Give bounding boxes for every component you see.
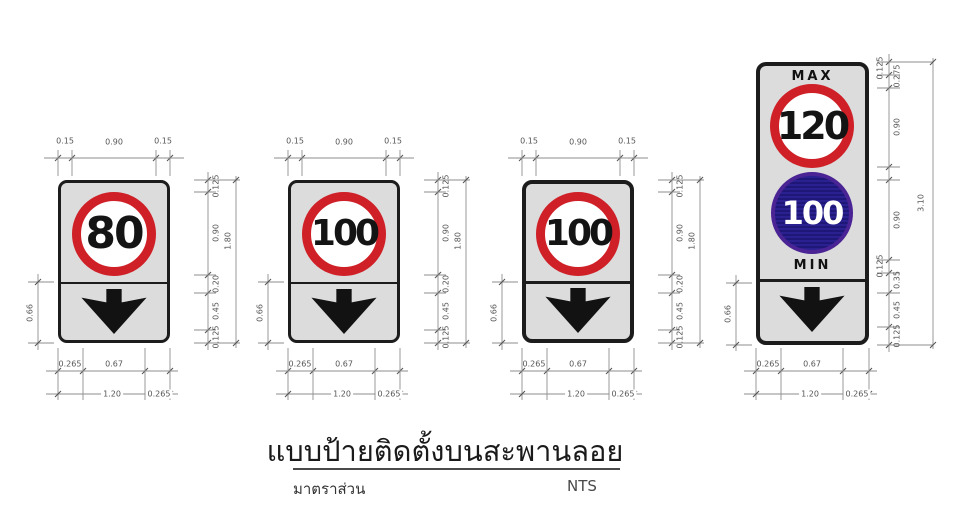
dim-label: 0.125 [876,57,885,80]
dim-label-total: 1.20 [565,390,587,399]
dim-label: 0.90 [212,224,221,242]
dim-label: 0.20 [442,275,451,293]
dim-label-total: 1.80 [688,232,697,250]
dim-label: 0.67 [569,360,587,369]
dim-label: 0.90 [335,138,353,147]
dim-label: 0.265 [610,390,637,399]
dim-label: 0.125 [876,255,885,278]
speed-limit-circle: 100 [536,192,620,276]
speed-sign-100-b: 100 [522,180,634,343]
dim-label: 0.15 [618,137,636,146]
dim-label: 0.67 [803,360,821,369]
dim-label: 0.90 [893,211,902,229]
max-speed-circle: 120 [770,84,854,168]
dim-label: 0.67 [335,360,353,369]
dim-label: 0.45 [893,301,902,319]
dim-label: 0.90 [569,138,587,147]
dim-label: 0.125 [212,175,221,198]
dim-label: 0.45 [212,302,221,320]
dim-label: 0.20 [212,275,221,293]
drawing-canvas: 80 0.15 0.90 0.15 0.125 0.90 0.20 0.45 0… [0,0,960,514]
down-arrow-icon [78,289,150,335]
max-min-speed-sign: MAX 120 100 MIN [756,62,869,345]
scale-label: มาตราส่วน [293,477,365,501]
dim-label: 0.90 [893,118,902,136]
dim-label: 0.265 [523,360,546,369]
dim-label: 0.66 [26,304,35,322]
dim-label: 0.90 [442,224,451,242]
dim-label: 0.20 [676,275,685,293]
dim-label: 0.125 [676,175,685,198]
dim-label: 0.125 [212,326,221,349]
down-arrow-icon [776,287,848,333]
dim-label-total: 3.10 [917,194,926,212]
max-label: MAX [760,69,865,84]
min-speed-circle: 100 [771,172,853,254]
dim-label: 0.15 [56,137,74,146]
dim-label: 0.265 [844,390,871,399]
dim-label: 0.90 [676,224,685,242]
dim-label: 0.125 [442,175,451,198]
dim-label: 0.45 [442,302,451,320]
dim-label: 0.45 [676,302,685,320]
dim-label: 0.35 [893,271,902,289]
speed-value: 100 [311,216,377,252]
panel-divider [291,282,397,284]
dim-label-total: 1.20 [799,390,821,399]
dim-label-total: 1.80 [454,232,463,250]
title-underline [293,468,620,470]
panel-divider [760,279,865,282]
max-speed-value: 120 [777,107,847,145]
min-speed-value: 100 [782,197,843,229]
dim-label: 0.125 [676,326,685,349]
dim-label: 0.265 [376,390,403,399]
down-arrow-icon [308,289,380,335]
dim-label-total: 1.20 [331,390,353,399]
dim-label-total: 1.20 [101,390,123,399]
dim-label: 0.90 [105,138,123,147]
dim-label: 0.265 [289,360,312,369]
dim-label: 0.265 [146,390,173,399]
down-arrow-icon [542,288,614,334]
dim-label-total: 1.80 [224,232,233,250]
min-label: MIN [760,258,865,273]
dim-label: 0.67 [105,360,123,369]
dim-label: 0.125 [442,326,451,349]
dim-label: 0.66 [256,304,265,322]
speed-limit-circle: 100 [302,192,386,276]
dim-label: 0.66 [724,305,733,323]
dim-label: 0.125 [893,325,902,348]
speed-value: 80 [85,212,142,256]
dim-label: 0.66 [490,304,499,322]
dim-label: 0.15 [286,137,304,146]
speed-value: 100 [545,216,611,252]
panel-divider [526,281,630,284]
scale-value: NTS [567,477,597,495]
dim-label: 0.15 [384,137,402,146]
speed-sign-80: 80 [58,180,170,343]
speed-limit-circle: 80 [72,192,156,276]
dim-label: 0.265 [59,360,82,369]
dim-label: 0.15 [520,137,538,146]
dim-label: 0.275 [893,65,902,88]
dim-label: 0.15 [154,137,172,146]
speed-sign-100-a: 100 [288,180,400,343]
panel-divider [61,282,167,284]
dim-label: 0.265 [757,360,780,369]
